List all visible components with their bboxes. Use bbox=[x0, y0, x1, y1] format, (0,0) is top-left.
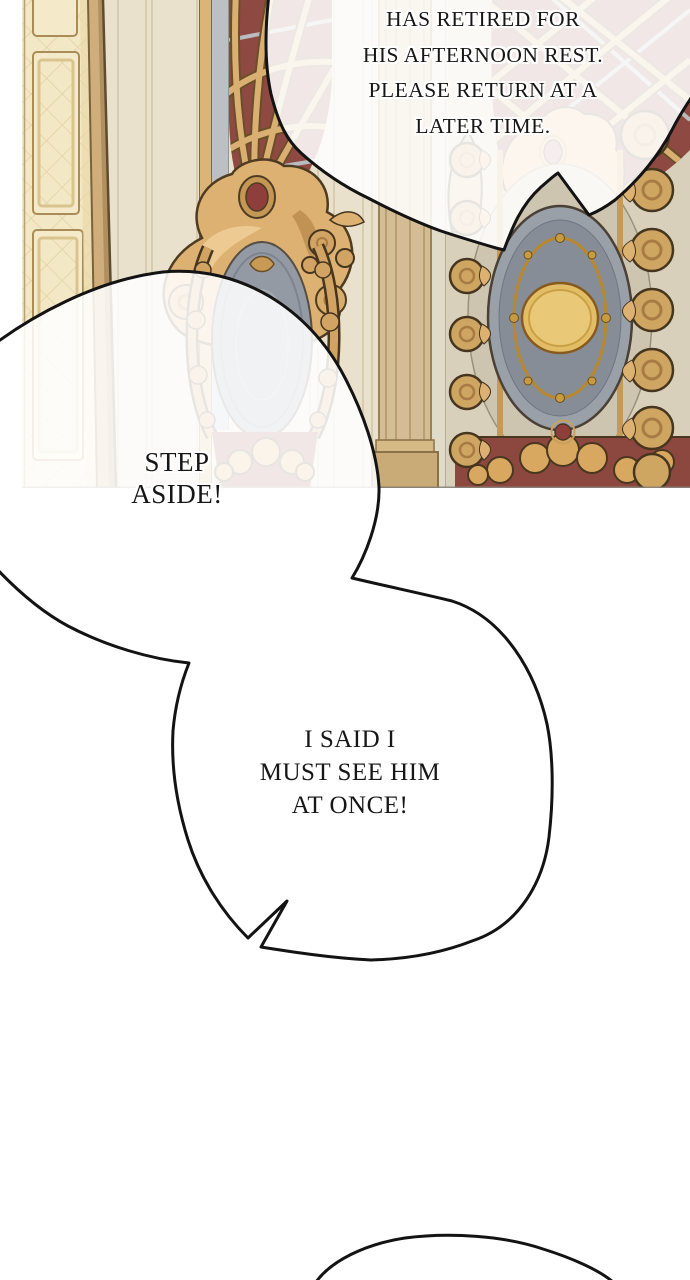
comic-page: HAS RETIRED FOR HIS AFTERNOON REST. PLEA… bbox=[0, 0, 690, 1280]
speech-bubble-insist-text: I SAID I MUST SEE HIM AT ONCE! bbox=[200, 723, 500, 822]
speech-bubble-step-aside-text: STEP ASIDE! bbox=[77, 446, 277, 510]
speech-bubble-bottom-peek-shape bbox=[316, 1235, 613, 1280]
comic-panel-artwork bbox=[0, 0, 690, 1280]
speech-bubble-top-text: HAS RETIRED FOR HIS AFTERNOON REST. PLEA… bbox=[258, 2, 690, 144]
